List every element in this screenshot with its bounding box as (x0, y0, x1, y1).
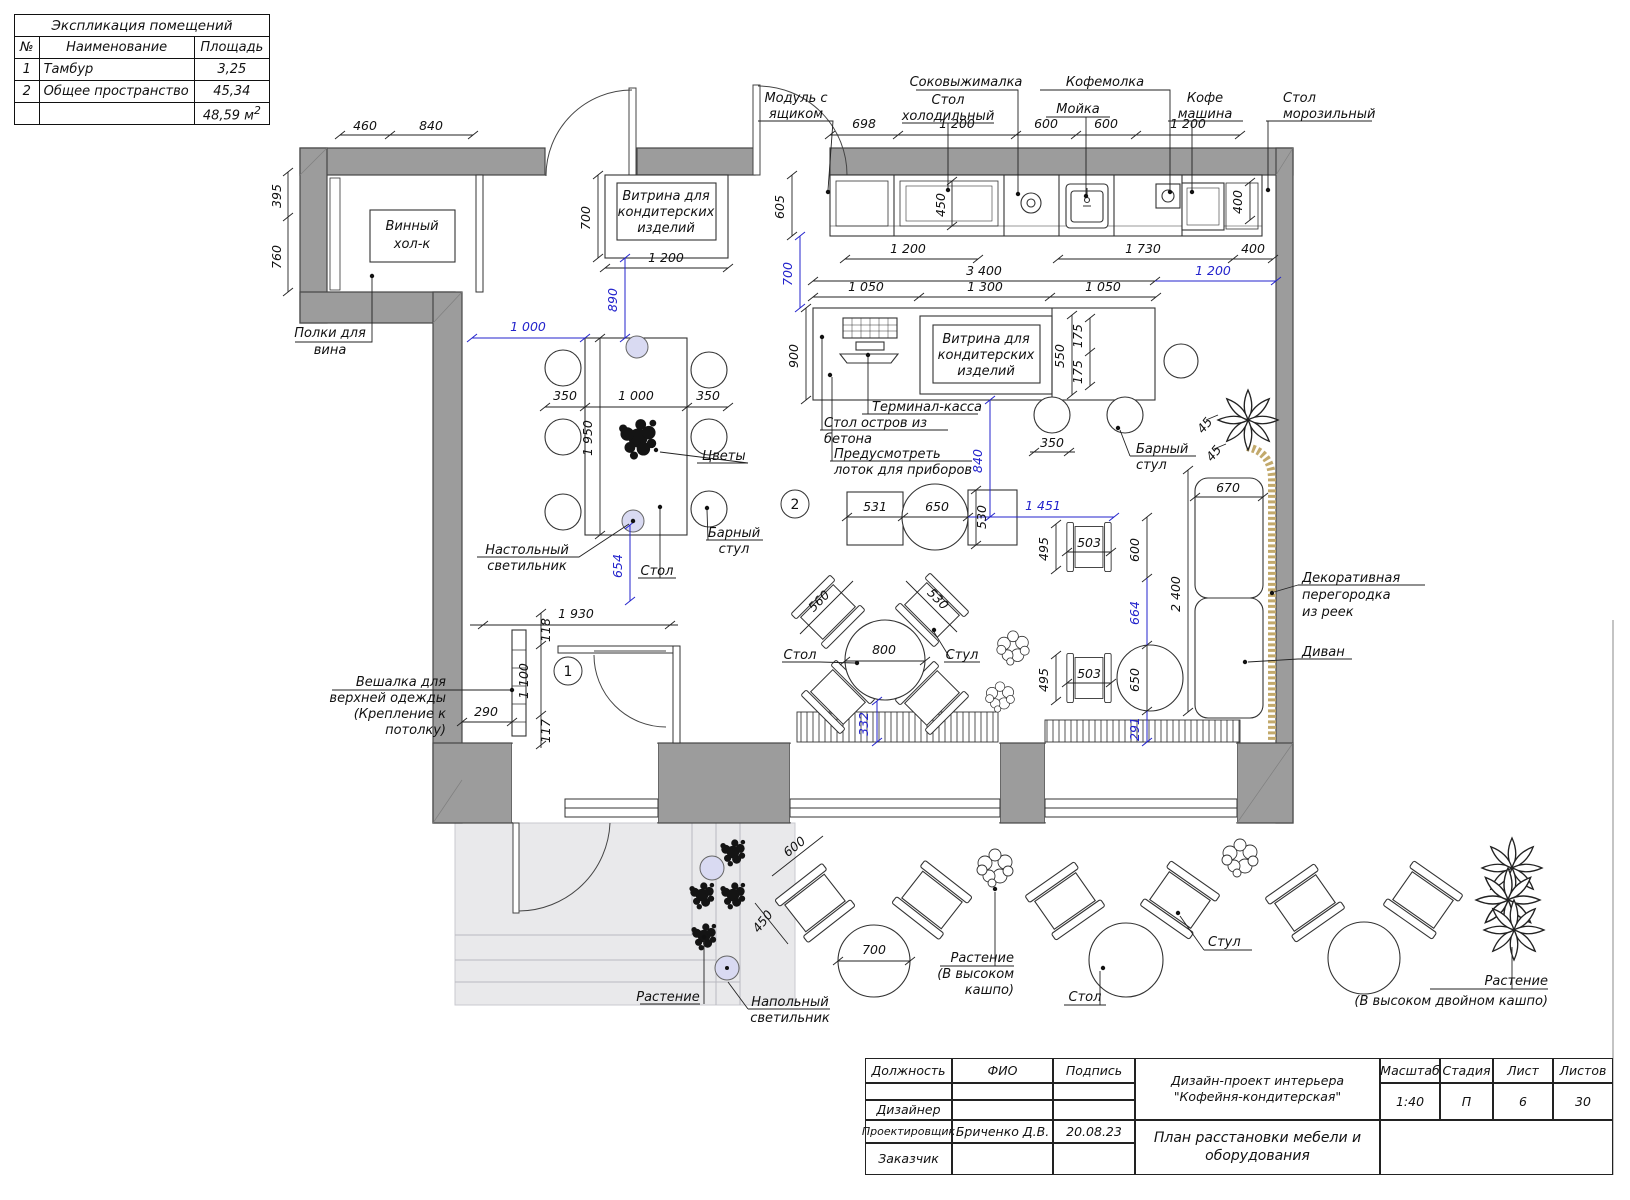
label-wine-shelves: вина (314, 343, 347, 358)
tb-stage-label: Стадия (1440, 1058, 1493, 1083)
dim-label: 1 200 (648, 250, 684, 265)
bar-stool (545, 494, 581, 530)
label-floor-lamp: светильник (750, 1011, 830, 1026)
dim-label-blue: 890 (605, 288, 620, 312)
dim-label: 117 (538, 719, 553, 743)
label-coat-rack: (Крепление к (354, 707, 446, 722)
label-cutlery-tray: лоток для приборов (833, 463, 972, 478)
label-wine-fridge: хол-к (393, 237, 431, 252)
label-plant-double-pot: (В высоком двойном кашпо) (1354, 994, 1548, 1009)
round-table-800 (845, 620, 925, 700)
legend-cell (39, 103, 194, 125)
dim-label: 503 (1077, 535, 1101, 550)
outdoor-furniture (775, 860, 1463, 997)
dim-label: 900 (786, 344, 801, 368)
label-coat-rack: потолку) (385, 723, 446, 738)
tb-row-client: Заказчик (865, 1143, 952, 1175)
label-pastry-case-island: кондитерских (938, 348, 1035, 363)
drawing-sheet: 460 840 395 760 700 1 200 698 1 200 600 … (0, 0, 1630, 1200)
dim-label: 700 (578, 206, 593, 230)
dim-label: 700 (862, 942, 886, 957)
dim-label: 600 (1034, 116, 1058, 131)
label-wine-shelves: Полки для (294, 326, 366, 341)
plant-bubble (986, 682, 1015, 712)
floor-plan-svg: 460 840 395 760 700 1 200 698 1 200 600 … (0, 0, 1630, 1200)
label-drawer-module: Модуль с (764, 91, 827, 106)
wine-area (330, 178, 455, 290)
dim-label: 650 (925, 499, 949, 514)
tb-scale-label: Масштаб (1380, 1058, 1440, 1083)
dim-label: 395 (269, 184, 284, 208)
tb-cell (1380, 1120, 1613, 1175)
bar-stool (691, 352, 727, 388)
label-slat-partition: Декоративная (1301, 571, 1400, 586)
label-slat-partition: из реек (1302, 605, 1354, 620)
dim-label-blue: 1 000 (510, 319, 546, 334)
door-leaf (629, 88, 636, 175)
bar-stool (1034, 397, 1070, 433)
chair (1265, 864, 1345, 943)
label-plant-tall-pot: (В высоком (937, 967, 1014, 982)
label-freezer-table: морозильный (1283, 107, 1376, 122)
tb-sheet-value: 6 (1493, 1083, 1553, 1120)
dim-label: 600 (1127, 538, 1142, 562)
bar-stool (545, 350, 581, 386)
label-pastry-case: изделий (637, 221, 695, 236)
legend-title: Экспликация помещений (15, 15, 270, 37)
label-drawer-module: ящиком (769, 107, 823, 122)
tb-cell (1053, 1083, 1135, 1100)
tb-project-name: Дизайн-проект интерьера"Кофейня-кондитер… (1135, 1058, 1380, 1120)
dim-label: 450 (933, 193, 948, 217)
label-sofa: Диван (1301, 645, 1345, 660)
dim-label: 698 (852, 116, 876, 131)
dim-label: 531 (863, 499, 887, 514)
dim-label-blue: 332 (856, 712, 871, 736)
wine-shelves (330, 178, 340, 290)
dim-label: 460 (353, 118, 377, 133)
dim-label: 400 (1241, 241, 1265, 256)
door-leaf (753, 85, 760, 175)
door-arc (594, 655, 666, 727)
windows (512, 744, 1237, 822)
tb-header-name: ФИО (952, 1058, 1053, 1083)
dim-label: 605 (772, 195, 787, 219)
legend-cell: 3,25 (194, 59, 269, 81)
label-bar-stool: Барный (708, 526, 760, 541)
room-number: 1 (564, 664, 573, 680)
tb-sheet-name: План расстановки мебели иоборудования (1135, 1120, 1380, 1175)
label-pastry-case: Витрина для (622, 189, 710, 204)
dim-label-blue: 1 200 (1195, 263, 1231, 278)
label-wine-fridge: Винный (385, 219, 438, 234)
dim-label: 1 050 (848, 279, 884, 294)
label-plant: Растение (636, 990, 699, 1005)
title-block: Должность ФИО Подпись Дизайнер Проектиро… (865, 1058, 1613, 1175)
tb-header-signature: Подпись (1053, 1058, 1135, 1083)
label-plant-double-pot: Растение (1485, 974, 1548, 989)
sink-icon (1066, 184, 1108, 228)
dim-label: 175 (1070, 360, 1085, 384)
dim-label: 1 200 (890, 241, 926, 256)
plant-bubble (1222, 839, 1258, 877)
dim-label-blue: 291 (1127, 717, 1142, 741)
dim-label: 495 (1036, 668, 1051, 692)
door-arc (546, 90, 632, 176)
kitchen-counter (830, 175, 1262, 236)
floor-lamp (700, 856, 724, 880)
legend-cell: 1 (15, 59, 40, 81)
label-sink: Мойка (1056, 102, 1099, 117)
legend-cell: 45,34 (194, 81, 269, 103)
dim-label: 400 (1230, 190, 1245, 214)
tb-sheets-value: 30 (1553, 1083, 1613, 1120)
tb-drafter-name: Бриченко Д.В. (952, 1120, 1053, 1143)
dim-label: 1 930 (558, 606, 594, 621)
dim-label: 650 (1127, 668, 1142, 692)
dim-label: 840 (419, 118, 443, 133)
dim-label-blue: 700 (780, 262, 795, 286)
label-table: Стол (784, 648, 817, 663)
label-slat-partition: перегородка (1302, 588, 1391, 603)
label-pos-terminal: Терминал-касса (872, 400, 982, 415)
dim-label: 760 (269, 245, 284, 269)
label-table: Стол (641, 564, 674, 579)
wine-fridge-box (370, 210, 455, 262)
dim-label: 1 000 (618, 388, 654, 403)
dim-label: 1 300 (967, 279, 1003, 294)
legend-cell: Общее пространство (39, 81, 194, 103)
bar-stool (691, 491, 727, 527)
dim-label-blue: 664 (1127, 601, 1142, 625)
label-table-lamp: Настольный (485, 543, 569, 558)
label-pastry-case-island: изделий (957, 364, 1015, 379)
label-coat-rack: Вешалка для (356, 675, 446, 690)
dim-label: 495 (1036, 537, 1051, 561)
table-lamp (626, 336, 648, 358)
label-plant-tall-pot: кашпо) (965, 983, 1014, 998)
tb-cell (952, 1143, 1053, 1175)
plant-leafy (1218, 390, 1278, 450)
room-schedule-table: Экспликация помещений № Наименование Пло… (14, 14, 270, 125)
tb-header-position: Должность (865, 1058, 952, 1083)
tb-cell (952, 1100, 1053, 1120)
tb-row-designer: Дизайнер (865, 1100, 952, 1120)
label-coffee-machine: Кофе (1187, 91, 1223, 106)
dim-label-blue: 840 (970, 449, 985, 473)
plant-bubble (977, 849, 1013, 887)
dim-label: 2 400 (1168, 576, 1183, 612)
bar-stool (1164, 344, 1198, 378)
label-juicer: Соковыжималка (910, 75, 1023, 90)
chair (892, 860, 973, 939)
dim-label: 530 (974, 505, 989, 529)
label-concrete-island: Стол остров из (824, 416, 927, 431)
room-number: 2 (791, 497, 800, 513)
tb-cell (1053, 1100, 1135, 1120)
label-pastry-case: кондитерских (618, 205, 715, 220)
dim-label: 350 (696, 388, 720, 403)
label-bar-stool: стул (1136, 458, 1167, 473)
label-table: Стол (1069, 990, 1102, 1005)
label-floor-lamp: Напольный (751, 995, 828, 1010)
label-concrete-island: бетона (824, 432, 872, 447)
juicer-icon (1021, 193, 1041, 213)
tb-sheets-label: Листов (1553, 1058, 1613, 1083)
label-fridge-table: Стол (932, 93, 965, 108)
dim-label: 1 100 (516, 663, 531, 699)
dim-label: 503 (1077, 666, 1101, 681)
label-chair: Стул (946, 648, 979, 663)
legend-cell: Тамбур (39, 59, 194, 81)
label-cutlery-tray: Предусмотреть (834, 447, 941, 462)
dim-label: 175 (1070, 324, 1085, 348)
label-flowers: Цветы (702, 449, 746, 464)
sofa (1195, 478, 1263, 718)
legend-col-area: Площадь (194, 37, 269, 59)
door-leaf (513, 823, 519, 913)
label-plant-tall-pot: Растение (951, 951, 1014, 966)
dim-label: 1 050 (1085, 279, 1121, 294)
dim-label: 1 950 (580, 420, 595, 456)
label-coffee-machine: машина (1178, 107, 1233, 122)
dim-label: 670 (1216, 480, 1240, 495)
dim-label: 118 (538, 618, 553, 642)
label-table-lamp: светильник (487, 559, 567, 574)
dim-label: 1 730 (1125, 241, 1161, 256)
label-freezer-table: Стол (1283, 91, 1316, 106)
dim-label: 800 (872, 642, 896, 657)
tb-stage-value: П (1440, 1083, 1493, 1120)
legend-total: 48,59 м2 (194, 103, 269, 125)
legend-cell: 2 (15, 81, 40, 103)
chair (1025, 862, 1105, 941)
plant-leafy-tall (1484, 900, 1544, 960)
label-bar-stool: стул (719, 542, 750, 557)
legend-col-num: № (15, 37, 40, 59)
legend-col-name: Наименование (39, 37, 194, 59)
tb-date: 20.08.23 (1053, 1120, 1135, 1143)
dim-label: 290 (474, 704, 498, 719)
coffee-grinder-icon (1156, 184, 1180, 208)
dim-label-blue: 654 (610, 554, 625, 578)
coffee-machine-icon (1182, 183, 1224, 230)
tb-row-drafter: Проектировщик (865, 1120, 952, 1143)
tb-scale-value: 1:40 (1380, 1083, 1440, 1120)
label-pastry-case-island: Витрина для (942, 332, 1030, 347)
label-coat-rack: верхней одежды (329, 691, 446, 706)
chair (1140, 861, 1220, 940)
round-table (1328, 922, 1400, 994)
dim-label: 45 (1203, 442, 1225, 464)
legend-cell (15, 103, 40, 125)
dim-label: 3 400 (966, 263, 1002, 278)
label-coffee-grinder: Кофемолка (1066, 75, 1144, 90)
dim-label: 600 (1094, 116, 1118, 131)
label-chair: Стул (1208, 935, 1241, 950)
dim-label-blue: 1 451 (1025, 498, 1061, 513)
label-bar-stool: Барный (1136, 442, 1188, 457)
label-fridge-table: холодильный (901, 109, 995, 124)
dim-label: 350 (1040, 435, 1064, 450)
tb-cell (952, 1083, 1053, 1100)
dim-label: 350 (553, 388, 577, 403)
chair (1383, 861, 1463, 940)
tb-cell (865, 1083, 952, 1100)
tb-cell (1053, 1143, 1135, 1175)
tb-sheet-label: Лист (1493, 1058, 1553, 1083)
bar-stool (1107, 397, 1143, 433)
dim-label: 550 (1052, 344, 1067, 368)
bar-stool (545, 419, 581, 455)
plant-bubble (997, 631, 1029, 665)
